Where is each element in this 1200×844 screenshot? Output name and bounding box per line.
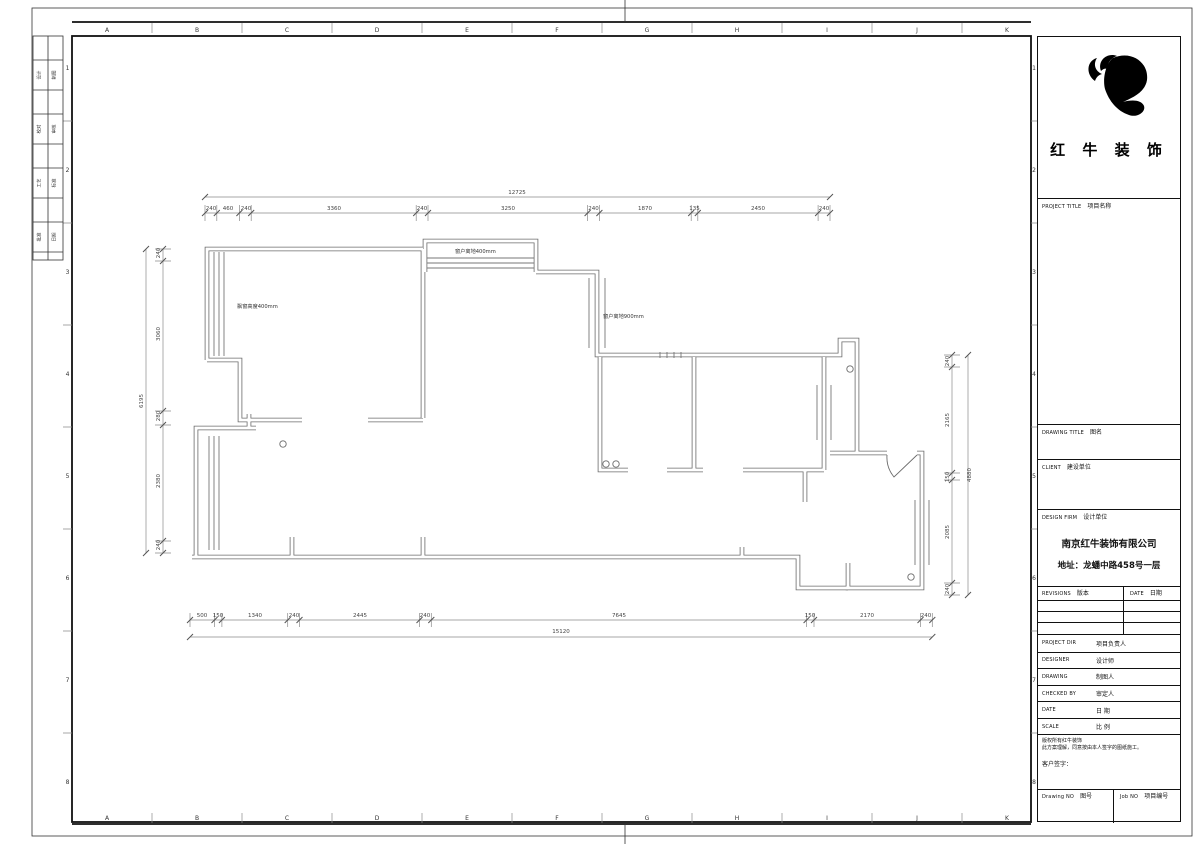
title-block: 红 牛 装 饰 PROJECT TITLE 项目名称 DRAWING TITLE… xyxy=(1037,36,1181,822)
dim-value: 2450 xyxy=(751,206,765,212)
row-label-en: SCALE xyxy=(1042,724,1059,730)
firm-name: 南京红牛装饰有限公司 xyxy=(1038,536,1180,550)
row-label-zh: 项目负责人 xyxy=(1096,639,1126,648)
grid-number: 8 xyxy=(66,779,70,786)
dim-value: 240 xyxy=(420,613,431,619)
grid-number: 8 xyxy=(1032,779,1036,786)
project-title-section: PROJECT TITLE 项目名称 xyxy=(1038,198,1180,424)
signoff-strip: 设计 制图 校对 审核 工艺 标准 批准 日期 xyxy=(33,36,63,260)
grid-letter: A xyxy=(105,27,110,34)
dim-value: 240 xyxy=(921,613,932,619)
dim-value: 240 xyxy=(241,206,252,212)
dim-value: 2170 xyxy=(860,613,874,619)
sheet-frame xyxy=(32,0,1192,844)
annotation-window-right: 窗户离地900mm xyxy=(603,312,644,320)
dim-value: 240 xyxy=(819,206,830,212)
dim-value: 240 xyxy=(588,206,599,212)
pipe-circle xyxy=(280,441,286,447)
annotation-window-top: 窗户离地400mm xyxy=(455,247,496,255)
dimension-chain-left: 6195 240 3060 280 2380 240 xyxy=(139,246,171,556)
grid-letter: B xyxy=(195,27,199,34)
row-scale: SCALE 比 例 xyxy=(1038,718,1180,735)
logo-section: 红 牛 装 饰 xyxy=(1038,37,1180,198)
signoff-cell: 标准 xyxy=(51,178,58,187)
project-title-label-en: PROJECT TITLE xyxy=(1042,204,1081,210)
grid-number: 1 xyxy=(1032,65,1036,72)
dim-value: 135 xyxy=(689,206,700,212)
grid-number: 7 xyxy=(1032,677,1036,684)
copyright-section: 版权所有红牛装饰 此方案理解，同意按由本人签字的图纸施工。 客户签字： xyxy=(1038,734,1180,789)
project-title-label-zh: 项目名称 xyxy=(1087,201,1111,210)
grid-letter: C xyxy=(285,27,289,34)
logo-shape xyxy=(1088,58,1102,81)
pipe-circle xyxy=(908,574,914,580)
dim-value: 1870 xyxy=(638,206,652,212)
drawing-number-divider xyxy=(1113,790,1114,823)
personnel-rows: PROJECT DIR 项目负责人 DESIGNER 设计师 DRAWING 制… xyxy=(1038,634,1180,734)
drawing-no-label-en: Drawing NO xyxy=(1042,794,1074,800)
row-label-zh: 审定人 xyxy=(1096,689,1114,698)
dim-value: 2445 xyxy=(353,613,367,619)
company-name: 红 牛 装 饰 xyxy=(1038,139,1180,160)
grid-number: 6 xyxy=(66,575,70,582)
grid-letter: D xyxy=(375,815,380,822)
row-label-en: DATE xyxy=(1042,707,1056,713)
grid-letter: C xyxy=(285,815,289,822)
signoff-cell: 审核 xyxy=(51,124,58,133)
row-label-zh: 比 例 xyxy=(1096,722,1110,731)
grid-letter: G xyxy=(645,27,650,34)
dimension-chain-right: 4880 240 2165 150 2085 240 xyxy=(944,352,973,598)
dim-value: 240 xyxy=(156,247,162,258)
row-date: DATE 日 期 xyxy=(1038,701,1180,718)
row-designer: DESIGNER 设计师 xyxy=(1038,652,1180,669)
signoff-cell: 制图 xyxy=(51,70,58,79)
grid-number: 5 xyxy=(66,473,70,480)
window-bottom-left xyxy=(209,436,219,550)
dim-total-bottom: 15120 xyxy=(552,629,570,635)
client-label-en: CLIENT xyxy=(1042,465,1061,471)
window-hatches xyxy=(209,252,929,565)
dim-value: 150 xyxy=(805,613,816,619)
grid-letter: I xyxy=(826,815,828,822)
revisions-table: REVISIONS 版本 DATE 日期 xyxy=(1038,586,1180,634)
job-no-label-zh: 项目编号 xyxy=(1144,791,1168,800)
grid-letter: B xyxy=(195,815,199,822)
dim-total-left: 6195 xyxy=(139,394,145,408)
door-swing xyxy=(887,455,917,477)
grid-number: 5 xyxy=(1032,473,1036,480)
drawing-title-label-en: DRAWING TITLE xyxy=(1042,430,1084,436)
grid-letter: K xyxy=(1005,815,1010,822)
row-label-en: DESIGNER xyxy=(1042,657,1070,663)
signoff-cell: 校对 xyxy=(36,124,43,133)
client-section: CLIENT 建设单位 xyxy=(1038,459,1180,509)
grid-number: 7 xyxy=(66,677,70,684)
dim-value: 460 xyxy=(223,206,234,212)
dim-value: 2085 xyxy=(945,525,951,539)
drawing-no-label-zh: 图号 xyxy=(1080,791,1092,800)
pipe-circle xyxy=(847,366,853,372)
job-no-label-en: Job NO xyxy=(1120,794,1138,800)
row-drawing: DRAWING 制图人 xyxy=(1038,668,1180,685)
dim-value: 240 xyxy=(156,539,162,550)
dim-value: 240 xyxy=(289,613,300,619)
grid-letter: G xyxy=(645,815,650,822)
grid-letter: H xyxy=(735,27,740,34)
grid-letter: I xyxy=(826,27,828,34)
grid-number: 4 xyxy=(1032,371,1036,378)
row-label-zh: 设计师 xyxy=(1096,656,1114,665)
pipe-circle xyxy=(603,461,609,467)
annotation-bay-window: 飘窗高度400mm xyxy=(237,302,278,310)
dim-value: 7645 xyxy=(612,613,626,619)
signoff-cell: 设计 xyxy=(36,70,43,79)
company-logo xyxy=(1067,51,1153,135)
revisions-label-zh: 版本 xyxy=(1077,588,1089,597)
dimension-chain-top: 12725 240 460 240 3360 240 3250 240 1870… xyxy=(202,190,833,221)
dim-value: 2165 xyxy=(945,413,951,427)
drawing-title-label-zh: 图名 xyxy=(1090,427,1102,436)
pipe-circle xyxy=(613,461,619,467)
dim-total-top: 12725 xyxy=(508,190,526,196)
grid-letter: J xyxy=(915,815,918,822)
grid-number: 2 xyxy=(66,167,70,174)
grid-letter: D xyxy=(375,27,380,34)
revisions-label-en: REVISIONS xyxy=(1042,591,1071,597)
grid-letter: F xyxy=(555,27,559,34)
dim-total-right: 4880 xyxy=(967,468,973,482)
date-header-en: DATE xyxy=(1130,591,1144,597)
grid-number: 3 xyxy=(1032,269,1036,276)
grid-letter: E xyxy=(465,27,469,34)
design-firm-section: DESIGN FIRM 设计单位 南京红牛装饰有限公司 地址：龙蟠中路458号一… xyxy=(1038,509,1180,586)
plan-walls xyxy=(192,241,922,588)
row-label-zh: 制图人 xyxy=(1096,672,1114,681)
dim-value: 240 xyxy=(945,583,951,594)
signoff-cell: 批准 xyxy=(36,232,43,241)
dim-value: 3060 xyxy=(156,327,162,341)
grid-letter: H xyxy=(735,815,740,822)
row-project-dir: PROJECT DIR 项目负责人 xyxy=(1038,635,1180,652)
dim-value: 150 xyxy=(945,471,951,482)
grid-numbers-left: 1 2 3 4 5 6 7 8 xyxy=(63,65,72,786)
dimension-chain-bottom: 15120 500 150 1340 240 2445 240 7645 150… xyxy=(187,613,935,640)
drawing-number-section: Drawing NO 图号 Job NO 项目编号 xyxy=(1038,789,1180,823)
client-label-zh: 建设单位 xyxy=(1067,462,1091,471)
drawing-title-section: DRAWING TITLE 图名 xyxy=(1038,424,1180,459)
grid-letter: J xyxy=(915,27,918,34)
dim-value: 150 xyxy=(213,613,224,619)
row-label-en: CHECKED BY xyxy=(1042,691,1076,697)
client-signature-label: 客户签字： xyxy=(1038,752,1180,768)
design-firm-label-zh: 设计单位 xyxy=(1083,512,1107,521)
row-checked-by: CHECKED BY 审定人 xyxy=(1038,685,1180,702)
dim-value: 500 xyxy=(197,613,208,619)
row-label-en: PROJECT DIR xyxy=(1042,640,1076,646)
copyright-line1: 版权所有红牛装饰 xyxy=(1042,738,1178,745)
dim-value: 2380 xyxy=(156,474,162,488)
bay-window-left xyxy=(214,252,224,356)
signoff-cell: 日期 xyxy=(52,232,58,241)
floor-plan-drawing: A B C D E F G H I J K A B C D E F G H I … xyxy=(0,0,1200,844)
grid-number: 3 xyxy=(66,269,70,276)
dim-value: 280 xyxy=(156,410,162,421)
dim-value: 3250 xyxy=(501,206,515,212)
dim-value: 240 xyxy=(417,206,428,212)
grid-letter: F xyxy=(555,815,559,822)
logo-shape xyxy=(1104,55,1147,115)
grid-number: 4 xyxy=(66,371,70,378)
grid-number: 1 xyxy=(66,65,70,72)
row-label-en: DRAWING xyxy=(1042,674,1068,680)
date-header-zh: 日期 xyxy=(1150,588,1162,597)
signoff-cell: 工艺 xyxy=(37,178,43,187)
row-label-zh: 日 期 xyxy=(1096,706,1110,715)
dim-value: 240 xyxy=(206,206,217,212)
firm-address: 地址：龙蟠中路458号一层 xyxy=(1038,559,1180,571)
grid-number: 2 xyxy=(1032,167,1036,174)
design-firm-label-en: DESIGN FIRM xyxy=(1042,515,1077,521)
grid-letter: E xyxy=(465,815,469,822)
dim-value: 1340 xyxy=(248,613,262,619)
grid-number: 6 xyxy=(1032,575,1036,582)
grid-letter: A xyxy=(105,815,110,822)
grid-letter: K xyxy=(1005,27,1010,34)
dim-value: 3360 xyxy=(327,206,341,212)
grid-letters-top: A B C D E F G H I J K xyxy=(105,23,1010,34)
window-top xyxy=(427,258,534,268)
dim-value: 240 xyxy=(945,355,951,366)
copyright-line2: 此方案理解，同意按由本人签字的图纸施工。 xyxy=(1042,745,1178,752)
drawing-sheet: A B C D E F G H I J K A B C D E F G H I … xyxy=(0,0,1200,844)
plan-walls-core xyxy=(192,241,922,588)
